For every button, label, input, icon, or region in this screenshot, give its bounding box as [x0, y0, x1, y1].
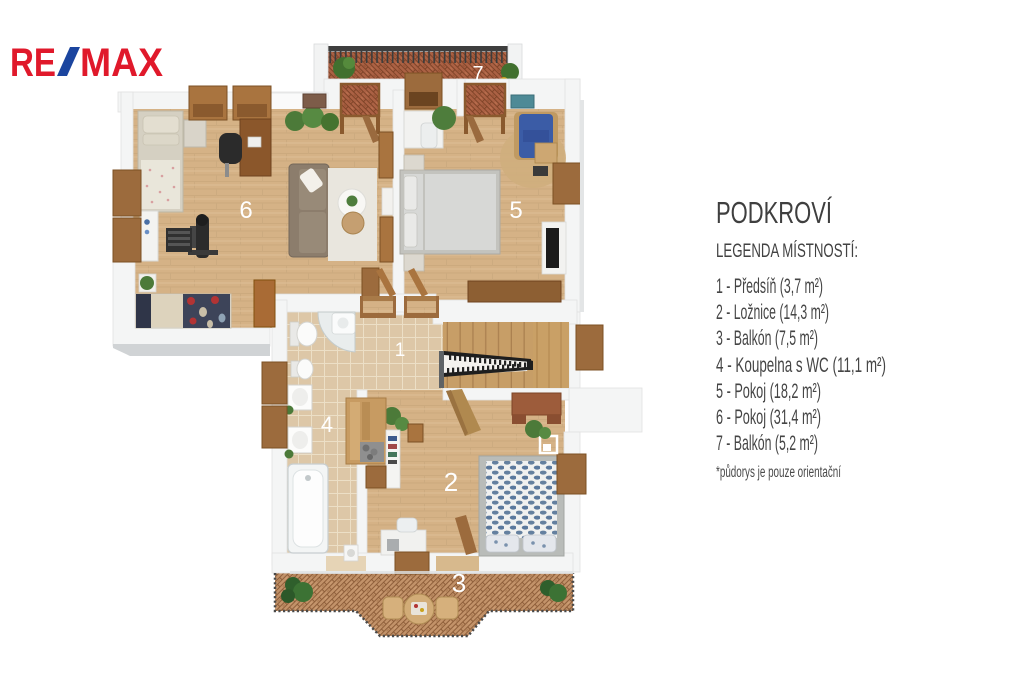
svg-text:LEGENDA MÍSTNOSTÍ:: LEGENDA MÍSTNOSTÍ: — [716, 239, 858, 262]
svg-text:*půdorys je pouze orientační: *půdorys je pouze orientační — [716, 464, 841, 481]
svg-text:4 - Koupelna s WC (11,1 m²): 4 - Koupelna s WC (11,1 m²) — [716, 354, 886, 377]
svg-text:2: 2 — [444, 467, 458, 497]
svg-text:1 - Předsíň (3,7 m²): 1 - Předsíň (3,7 m²) — [716, 275, 823, 298]
svg-text:5 - Pokoj (18,2 m²): 5 - Pokoj (18,2 m²) — [716, 380, 821, 403]
svg-text:5: 5 — [509, 197, 522, 224]
svg-text:7 - Balkón (5,2 m²): 7 - Balkón (5,2 m²) — [716, 432, 818, 455]
svg-text:4: 4 — [321, 412, 333, 437]
svg-text:3: 3 — [452, 568, 466, 598]
svg-text:6: 6 — [239, 197, 252, 224]
svg-text:RE: RE — [10, 41, 56, 85]
svg-text:1: 1 — [395, 340, 406, 361]
svg-text:PODKROVÍ: PODKROVÍ — [716, 195, 832, 230]
svg-text:2 - Ložnice (14,3 m²): 2 - Ložnice (14,3 m²) — [716, 301, 829, 324]
svg-text:7: 7 — [472, 63, 483, 85]
svg-text:MAX: MAX — [80, 41, 163, 85]
svg-text:6 - Pokoj (31,4 m²): 6 - Pokoj (31,4 m²) — [716, 406, 821, 429]
svg-text:3 - Balkón (7,5 m²): 3 - Balkón (7,5 m²) — [716, 327, 818, 350]
